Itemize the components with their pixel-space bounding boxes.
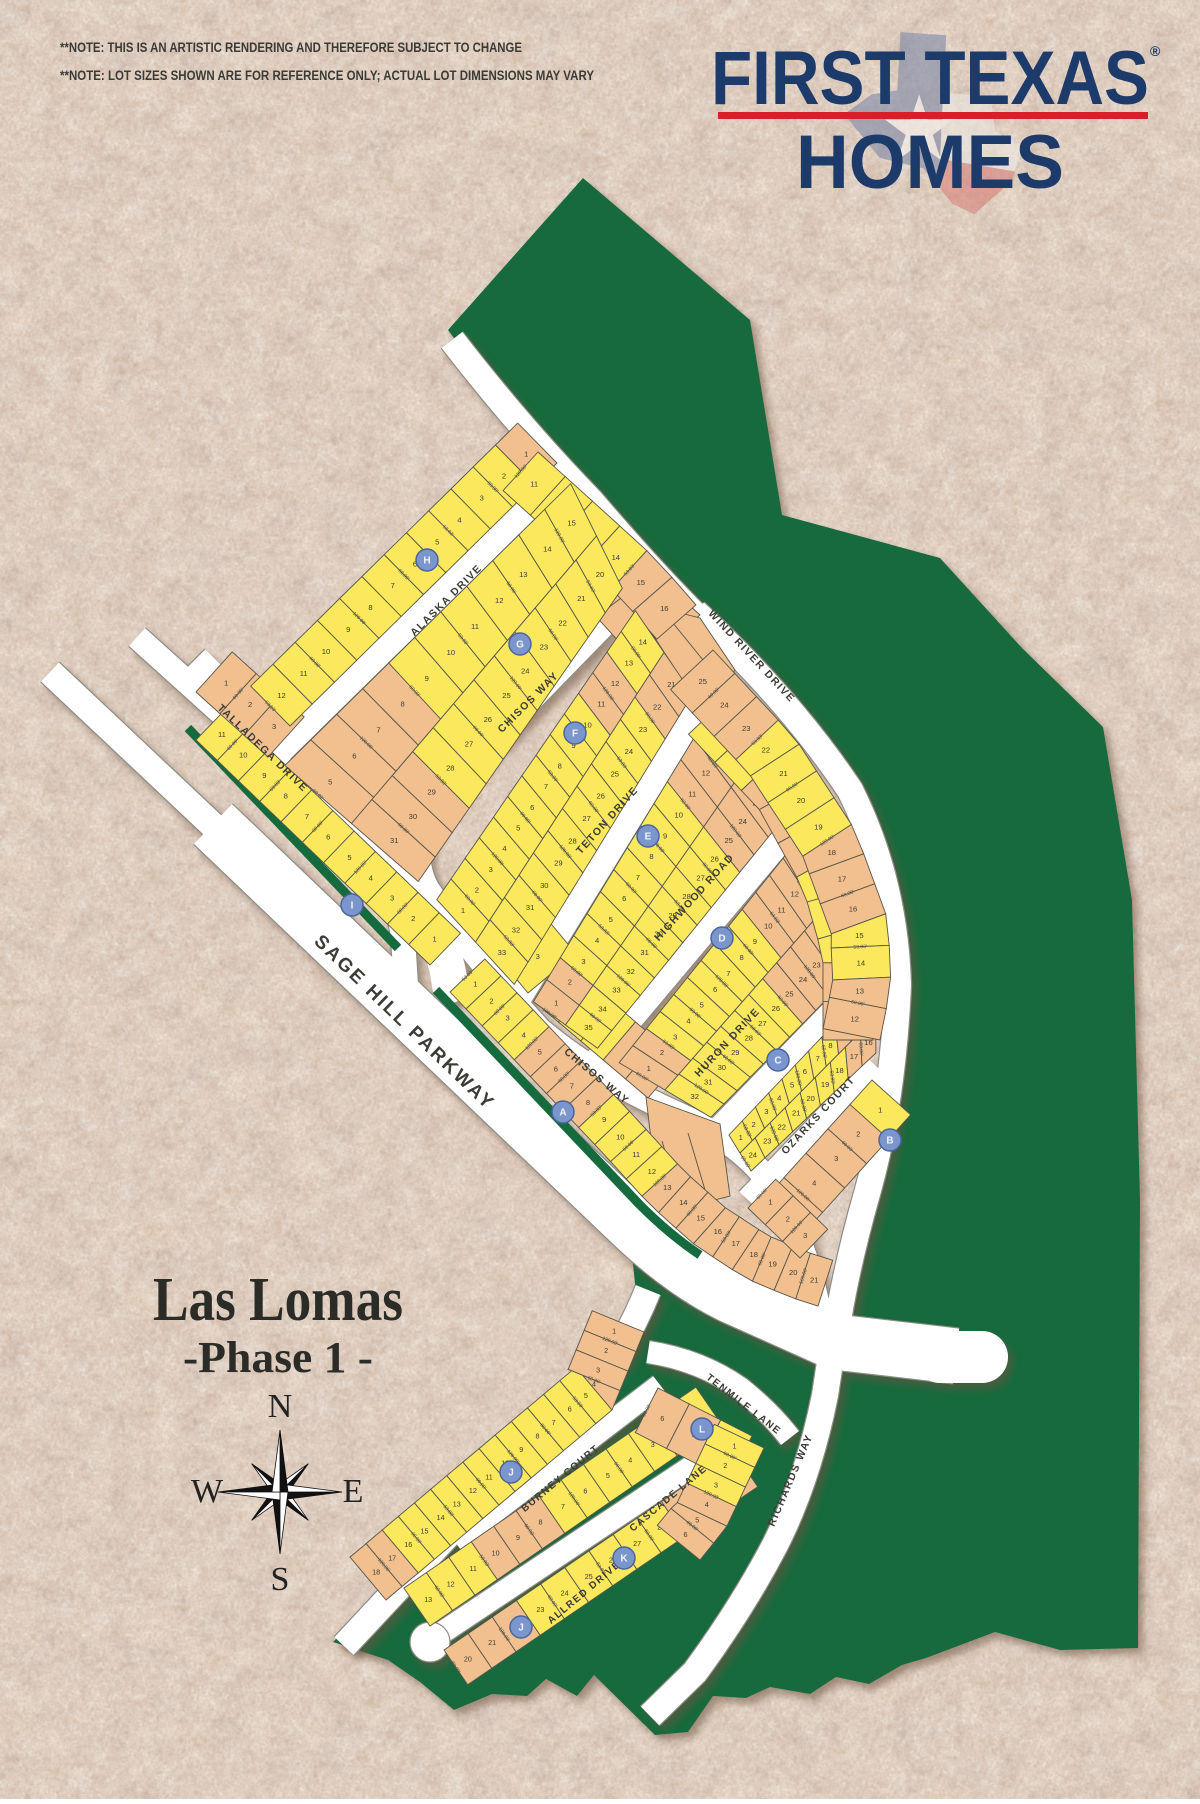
svg-text:8: 8 — [536, 1432, 540, 1441]
svg-text:23: 23 — [763, 1136, 771, 1145]
svg-text:1: 1 — [224, 678, 228, 687]
svg-text:15: 15 — [855, 931, 863, 940]
svg-text:7: 7 — [391, 581, 395, 590]
svg-text:F: F — [572, 729, 578, 740]
svg-text:8: 8 — [400, 700, 404, 709]
svg-text:32: 32 — [690, 1092, 698, 1101]
svg-text:53.83': 53.83' — [853, 944, 867, 951]
svg-text:28: 28 — [446, 763, 454, 772]
svg-text:35: 35 — [584, 1023, 592, 1032]
svg-text:23: 23 — [540, 642, 548, 651]
svg-text:-Phase 1 -: -Phase 1 - — [183, 1333, 373, 1382]
svg-text:13: 13 — [424, 1595, 432, 1604]
svg-text:4: 4 — [777, 1094, 781, 1103]
svg-text:27: 27 — [582, 814, 590, 823]
svg-text:32: 32 — [512, 925, 520, 934]
svg-text:2: 2 — [489, 997, 493, 1006]
svg-text:14: 14 — [679, 1198, 687, 1207]
svg-text:A: A — [559, 1108, 566, 1119]
svg-text:28: 28 — [568, 836, 576, 845]
svg-text:9: 9 — [516, 1533, 520, 1542]
svg-text:FIRST TEXAS: FIRST TEXAS — [711, 36, 1149, 121]
svg-text:3: 3 — [480, 493, 484, 502]
svg-text:S: S — [271, 1561, 290, 1598]
svg-text:7: 7 — [305, 812, 309, 821]
svg-text:20: 20 — [596, 570, 604, 579]
svg-text:4: 4 — [628, 1456, 632, 1465]
svg-text:31: 31 — [526, 903, 534, 912]
svg-text:31: 31 — [640, 948, 648, 957]
svg-text:1: 1 — [432, 935, 436, 944]
svg-text:**NOTE: THIS IS AN ARTISTIC RE: **NOTE: THIS IS AN ARTISTIC RENDERING AN… — [60, 40, 522, 55]
svg-text:15: 15 — [696, 1214, 704, 1223]
svg-text:17: 17 — [388, 1554, 396, 1563]
svg-text:J: J — [508, 1468, 514, 1479]
svg-text:26: 26 — [484, 715, 492, 724]
svg-text:12: 12 — [702, 769, 710, 778]
svg-text:3: 3 — [505, 1013, 509, 1022]
svg-text:6: 6 — [352, 751, 356, 760]
svg-text:14: 14 — [543, 544, 551, 553]
svg-text:6: 6 — [568, 1404, 572, 1413]
svg-text:11: 11 — [597, 700, 605, 709]
svg-text:30: 30 — [540, 881, 548, 890]
svg-text:6: 6 — [326, 832, 330, 841]
svg-text:15: 15 — [637, 578, 645, 587]
svg-text:2: 2 — [568, 978, 572, 987]
svg-text:1: 1 — [554, 999, 558, 1008]
svg-text:60.00': 60.00' — [857, 1042, 864, 1056]
svg-text:23: 23 — [536, 1605, 544, 1614]
svg-text:2: 2 — [786, 1214, 790, 1223]
svg-text:4: 4 — [686, 1016, 690, 1025]
svg-text:6: 6 — [803, 1067, 807, 1076]
svg-text:23: 23 — [812, 960, 820, 969]
svg-text:24: 24 — [799, 975, 807, 984]
svg-text:15: 15 — [421, 1527, 429, 1536]
svg-text:29: 29 — [427, 788, 435, 797]
svg-text:10: 10 — [616, 1132, 624, 1141]
svg-text:16: 16 — [404, 1540, 412, 1549]
svg-text:2: 2 — [723, 1461, 727, 1470]
svg-text:4: 4 — [595, 936, 599, 945]
svg-text:25: 25 — [502, 691, 510, 700]
svg-text:28: 28 — [745, 1033, 753, 1042]
svg-text:32: 32 — [626, 967, 634, 976]
svg-text:16: 16 — [660, 604, 668, 613]
svg-text:3: 3 — [581, 957, 585, 966]
svg-text:Las Lomas: Las Lomas — [153, 1266, 403, 1334]
svg-text:1: 1 — [524, 450, 528, 459]
svg-text:4: 4 — [812, 1178, 816, 1187]
svg-text:22: 22 — [558, 618, 566, 627]
svg-text:17: 17 — [838, 874, 846, 883]
svg-text:11: 11 — [530, 479, 538, 488]
svg-text:1: 1 — [473, 980, 477, 989]
svg-text:H: H — [423, 556, 430, 567]
svg-text:4: 4 — [369, 873, 373, 882]
svg-text:31: 31 — [704, 1077, 712, 1086]
svg-text:6: 6 — [684, 1530, 688, 1539]
svg-text:8: 8 — [739, 953, 743, 962]
svg-text:1: 1 — [612, 1327, 616, 1336]
svg-text:9: 9 — [519, 1445, 523, 1454]
svg-text:21: 21 — [792, 1108, 800, 1117]
svg-text:26: 26 — [596, 792, 604, 801]
svg-text:12: 12 — [611, 679, 619, 688]
svg-text:8: 8 — [586, 1098, 590, 1107]
svg-text:18: 18 — [828, 848, 836, 857]
svg-text:13: 13 — [453, 1499, 461, 1508]
svg-text:5: 5 — [790, 1080, 794, 1089]
svg-text:12: 12 — [850, 1014, 858, 1023]
svg-text:24: 24 — [738, 817, 746, 826]
svg-text:25: 25 — [724, 836, 732, 845]
svg-text:G: G — [516, 640, 524, 651]
svg-text:10: 10 — [674, 810, 682, 819]
svg-text:1: 1 — [768, 1198, 772, 1207]
svg-text:5: 5 — [516, 823, 520, 832]
svg-text:11: 11 — [485, 1472, 492, 1481]
svg-text:W: W — [191, 1473, 224, 1510]
svg-text:2: 2 — [248, 700, 252, 709]
svg-text:18: 18 — [835, 1066, 843, 1075]
svg-text:14: 14 — [857, 958, 865, 967]
svg-text:14: 14 — [639, 638, 647, 647]
svg-text:5: 5 — [347, 853, 351, 862]
svg-text:6: 6 — [583, 1487, 587, 1496]
svg-text:5: 5 — [695, 1516, 699, 1525]
svg-text:11: 11 — [632, 1150, 640, 1159]
svg-text:33: 33 — [498, 948, 506, 957]
svg-text:22: 22 — [653, 702, 661, 711]
svg-text:7: 7 — [636, 873, 640, 882]
svg-text:7: 7 — [816, 1054, 820, 1063]
svg-text:5: 5 — [584, 1391, 588, 1400]
svg-text:10: 10 — [447, 648, 455, 657]
svg-text:12: 12 — [447, 1579, 455, 1588]
svg-text:18: 18 — [749, 1250, 757, 1259]
svg-text:22: 22 — [762, 746, 770, 755]
svg-text:8: 8 — [828, 1041, 832, 1050]
svg-text:27: 27 — [633, 1539, 641, 1548]
svg-text:6: 6 — [660, 1414, 664, 1423]
svg-text:7: 7 — [376, 725, 380, 734]
svg-text:B: B — [886, 1136, 893, 1147]
svg-text:1: 1 — [878, 1105, 882, 1114]
svg-text:1: 1 — [647, 1064, 651, 1073]
svg-text:5: 5 — [609, 915, 613, 924]
svg-text:23: 23 — [742, 724, 750, 733]
svg-text:18: 18 — [372, 1567, 380, 1576]
svg-text:5: 5 — [435, 537, 439, 546]
svg-text:3: 3 — [390, 894, 394, 903]
svg-text:L: L — [699, 1425, 705, 1436]
svg-text:N: N — [268, 1388, 293, 1425]
svg-text:19: 19 — [768, 1259, 776, 1268]
svg-text:14: 14 — [612, 553, 620, 562]
svg-text:9: 9 — [425, 674, 429, 683]
svg-text:C: C — [774, 1056, 781, 1067]
svg-text:23: 23 — [639, 725, 647, 734]
svg-text:4: 4 — [502, 844, 506, 853]
svg-text:11: 11 — [688, 789, 696, 798]
svg-text:10: 10 — [764, 921, 772, 930]
svg-text:2: 2 — [475, 885, 479, 894]
svg-text:12: 12 — [469, 1486, 477, 1495]
svg-text:5: 5 — [606, 1471, 610, 1480]
svg-text:21: 21 — [810, 1275, 818, 1284]
svg-text:16: 16 — [849, 904, 857, 913]
svg-text:3: 3 — [596, 1366, 600, 1375]
svg-text:14: 14 — [437, 1513, 445, 1522]
svg-text:2: 2 — [660, 1048, 664, 1057]
svg-text:31: 31 — [390, 836, 398, 845]
svg-text:11: 11 — [778, 905, 786, 914]
svg-text:8: 8 — [539, 1518, 543, 1527]
svg-text:2: 2 — [751, 1120, 755, 1129]
svg-text:6: 6 — [554, 1064, 558, 1073]
svg-text:20: 20 — [789, 1268, 797, 1277]
svg-text:19: 19 — [814, 823, 822, 832]
svg-text:21: 21 — [577, 594, 585, 603]
svg-text:20: 20 — [464, 1655, 472, 1664]
svg-text:6: 6 — [530, 803, 534, 812]
svg-text:16: 16 — [714, 1227, 722, 1236]
svg-text:7: 7 — [570, 1081, 574, 1090]
svg-text:4: 4 — [522, 1030, 526, 1039]
svg-text:10: 10 — [239, 750, 247, 759]
svg-text:E: E — [645, 832, 652, 843]
svg-text:25: 25 — [698, 677, 706, 686]
svg-text:9: 9 — [753, 937, 757, 946]
svg-text:7: 7 — [726, 969, 730, 978]
svg-text:9: 9 — [663, 831, 667, 840]
svg-text:E: E — [343, 1473, 364, 1510]
svg-text:27: 27 — [758, 1019, 766, 1028]
svg-text:11: 11 — [218, 730, 226, 739]
svg-text:30: 30 — [409, 812, 417, 821]
svg-text:3: 3 — [714, 1481, 718, 1490]
svg-text:3: 3 — [489, 865, 493, 874]
svg-text:3: 3 — [764, 1107, 768, 1116]
svg-text:24: 24 — [720, 700, 728, 709]
svg-text:1: 1 — [733, 1442, 737, 1451]
svg-text:17: 17 — [850, 1052, 858, 1061]
svg-text:7: 7 — [544, 782, 548, 791]
svg-text:I: I — [351, 901, 354, 912]
svg-text:5: 5 — [328, 777, 332, 786]
svg-text:17: 17 — [732, 1239, 740, 1248]
svg-text:21: 21 — [488, 1638, 496, 1647]
svg-text:12: 12 — [277, 691, 285, 700]
svg-text:D: D — [718, 934, 725, 945]
svg-text:25: 25 — [611, 769, 619, 778]
svg-text:9: 9 — [262, 771, 266, 780]
svg-text:24: 24 — [561, 1589, 569, 1598]
svg-text:12: 12 — [648, 1167, 656, 1176]
svg-text:34: 34 — [598, 1004, 606, 1013]
svg-text:26: 26 — [772, 1004, 780, 1013]
svg-text:20: 20 — [797, 796, 805, 805]
svg-text:8: 8 — [649, 852, 653, 861]
svg-text:11: 11 — [471, 622, 479, 631]
svg-text:27: 27 — [465, 739, 473, 748]
svg-text:5: 5 — [538, 1047, 542, 1056]
svg-text:2: 2 — [502, 472, 506, 481]
svg-text:3: 3 — [272, 722, 276, 731]
svg-text:3: 3 — [536, 952, 540, 961]
svg-text:13: 13 — [625, 658, 633, 667]
svg-text:13: 13 — [519, 570, 527, 579]
svg-text:2: 2 — [856, 1130, 860, 1139]
svg-text:2: 2 — [411, 914, 415, 923]
svg-text:21: 21 — [779, 769, 787, 778]
svg-text:29: 29 — [731, 1048, 739, 1057]
svg-text:1: 1 — [461, 906, 465, 915]
svg-text:24: 24 — [625, 747, 633, 756]
svg-text:3: 3 — [673, 1032, 677, 1041]
svg-text:24: 24 — [521, 667, 529, 676]
svg-text:2: 2 — [604, 1346, 608, 1355]
svg-text:7: 7 — [561, 1502, 565, 1511]
svg-text:9: 9 — [602, 1115, 606, 1124]
svg-text:4: 4 — [457, 515, 461, 524]
svg-text:1: 1 — [739, 1133, 743, 1142]
svg-text:33: 33 — [612, 986, 620, 995]
svg-text:29: 29 — [554, 859, 562, 868]
svg-text:8: 8 — [558, 762, 562, 771]
svg-text:10: 10 — [322, 647, 330, 656]
svg-text:11: 11 — [300, 669, 308, 678]
svg-text:24: 24 — [749, 1151, 757, 1160]
svg-text:6: 6 — [622, 894, 626, 903]
svg-text:8: 8 — [368, 603, 372, 612]
svg-text:25: 25 — [785, 990, 793, 999]
svg-text:**NOTE: LOT SIZES SHOWN ARE FO: **NOTE: LOT SIZES SHOWN ARE FOR REFERENC… — [60, 68, 594, 83]
svg-text:13: 13 — [855, 986, 863, 995]
svg-text:30: 30 — [718, 1063, 726, 1072]
svg-text:K: K — [620, 1554, 628, 1565]
svg-text:12: 12 — [790, 889, 798, 898]
svg-text:22: 22 — [777, 1122, 785, 1131]
svg-text:®: ® — [1150, 43, 1161, 59]
svg-text:15: 15 — [567, 518, 575, 527]
svg-text:7: 7 — [552, 1418, 556, 1427]
svg-text:6: 6 — [713, 985, 717, 994]
svg-text:11: 11 — [469, 1564, 476, 1573]
svg-text:12: 12 — [495, 596, 503, 605]
svg-text:4: 4 — [705, 1500, 709, 1509]
svg-text:5: 5 — [700, 1001, 704, 1010]
svg-text:HOMES: HOMES — [796, 120, 1064, 205]
svg-text:3: 3 — [803, 1231, 807, 1240]
svg-text:10: 10 — [492, 1548, 500, 1557]
svg-text:20: 20 — [806, 1094, 814, 1103]
svg-text:J: J — [518, 1623, 524, 1634]
svg-text:13: 13 — [663, 1183, 671, 1192]
svg-text:19: 19 — [821, 1080, 829, 1089]
svg-text:3: 3 — [834, 1154, 838, 1163]
svg-text:8: 8 — [284, 791, 288, 800]
svg-text:9: 9 — [346, 625, 350, 634]
